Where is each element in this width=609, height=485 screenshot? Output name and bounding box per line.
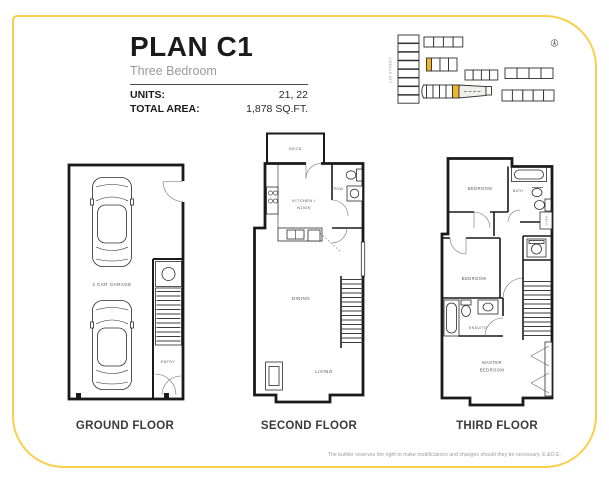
deck-label: DECK [289, 146, 302, 151]
bath-label: BATH [513, 189, 524, 193]
street-label: 138 STREET [389, 57, 393, 83]
kitchen-label: KITCHEN / [292, 198, 316, 203]
plan-subtitle: Three Bedroom [130, 64, 308, 78]
site-map-row [502, 90, 554, 101]
dishwasher-icon [308, 230, 320, 241]
master-label: BEDROOM [480, 368, 505, 373]
sink-icon [478, 300, 498, 314]
bathtub-icon [512, 168, 547, 182]
highlighted-unit [453, 85, 460, 98]
master-label: MASTER [482, 360, 502, 365]
area-value: 1,878 SQ.FT. [246, 103, 308, 115]
site-map-long-building [422, 85, 492, 98]
ensuite-label: ENSUITE [469, 326, 488, 330]
ground-floor-plan: 2 CAR GARAGE ENTRY [60, 150, 190, 412]
area-row: TOTAL AREA: 1,878 SQ.FT. [130, 103, 308, 115]
linen-label: LINEN [545, 216, 549, 226]
bedroom-label: BEDROOM [468, 186, 493, 191]
site-map-left-column [398, 35, 419, 103]
toilet-icon [461, 300, 471, 317]
units-label: UNITS: [130, 89, 165, 101]
powder-label: POW. [334, 187, 344, 191]
header-divider [130, 84, 308, 85]
garage-door-post [164, 393, 169, 398]
living-label: LIVING [315, 369, 332, 374]
site-map-row [465, 70, 498, 80]
area-label: TOTAL AREA: [130, 103, 200, 115]
car-icon [91, 301, 134, 390]
compass-icon [551, 39, 558, 46]
sink-icon [287, 230, 304, 239]
ground-floor-label: GROUND FLOOR [60, 420, 190, 432]
second-floor-label: SECOND FLOOR [244, 420, 374, 432]
water-heater-icon [156, 262, 182, 287]
kitchen-label: NOOK [297, 205, 310, 210]
plan-title: PLAN C1 [130, 33, 308, 61]
third-floor-plan: BEDROOM BATH LINEN BEDROOM [428, 150, 566, 412]
units-row: UNITS: 21, 22 [130, 89, 308, 101]
bathtub-icon [444, 300, 459, 336]
site-map: 138 STREET [383, 28, 568, 118]
third-floor-label: THIRD FLOOR [428, 420, 566, 432]
plan-header: PLAN C1 Three Bedroom UNITS: 21, 22 TOTA… [130, 33, 308, 115]
site-map-row [427, 58, 458, 71]
disclaimer-text: The builder reserves the right to make m… [328, 452, 561, 458]
units-value: 21, 22 [279, 89, 308, 101]
site-map-row [505, 68, 553, 79]
highlighted-unit [427, 58, 432, 71]
garage-label: 2 CAR GARAGE [92, 282, 131, 287]
sink-icon [347, 186, 363, 201]
window [361, 242, 364, 276]
dining-label: DINING [292, 296, 311, 301]
site-map-row [424, 37, 463, 47]
second-floor-plan: DECK KITCHEN / NOOK POW. DINING LIVING [244, 130, 374, 415]
stairs [156, 288, 182, 345]
car-icon [91, 178, 134, 267]
stove-icon [267, 187, 279, 214]
fireplace [266, 362, 283, 390]
bedroom-label: BEDROOM [462, 276, 487, 281]
garage-door-post [76, 393, 81, 398]
washer-dryer-icon [527, 239, 546, 257]
entry-label: ENTRY [161, 360, 175, 364]
